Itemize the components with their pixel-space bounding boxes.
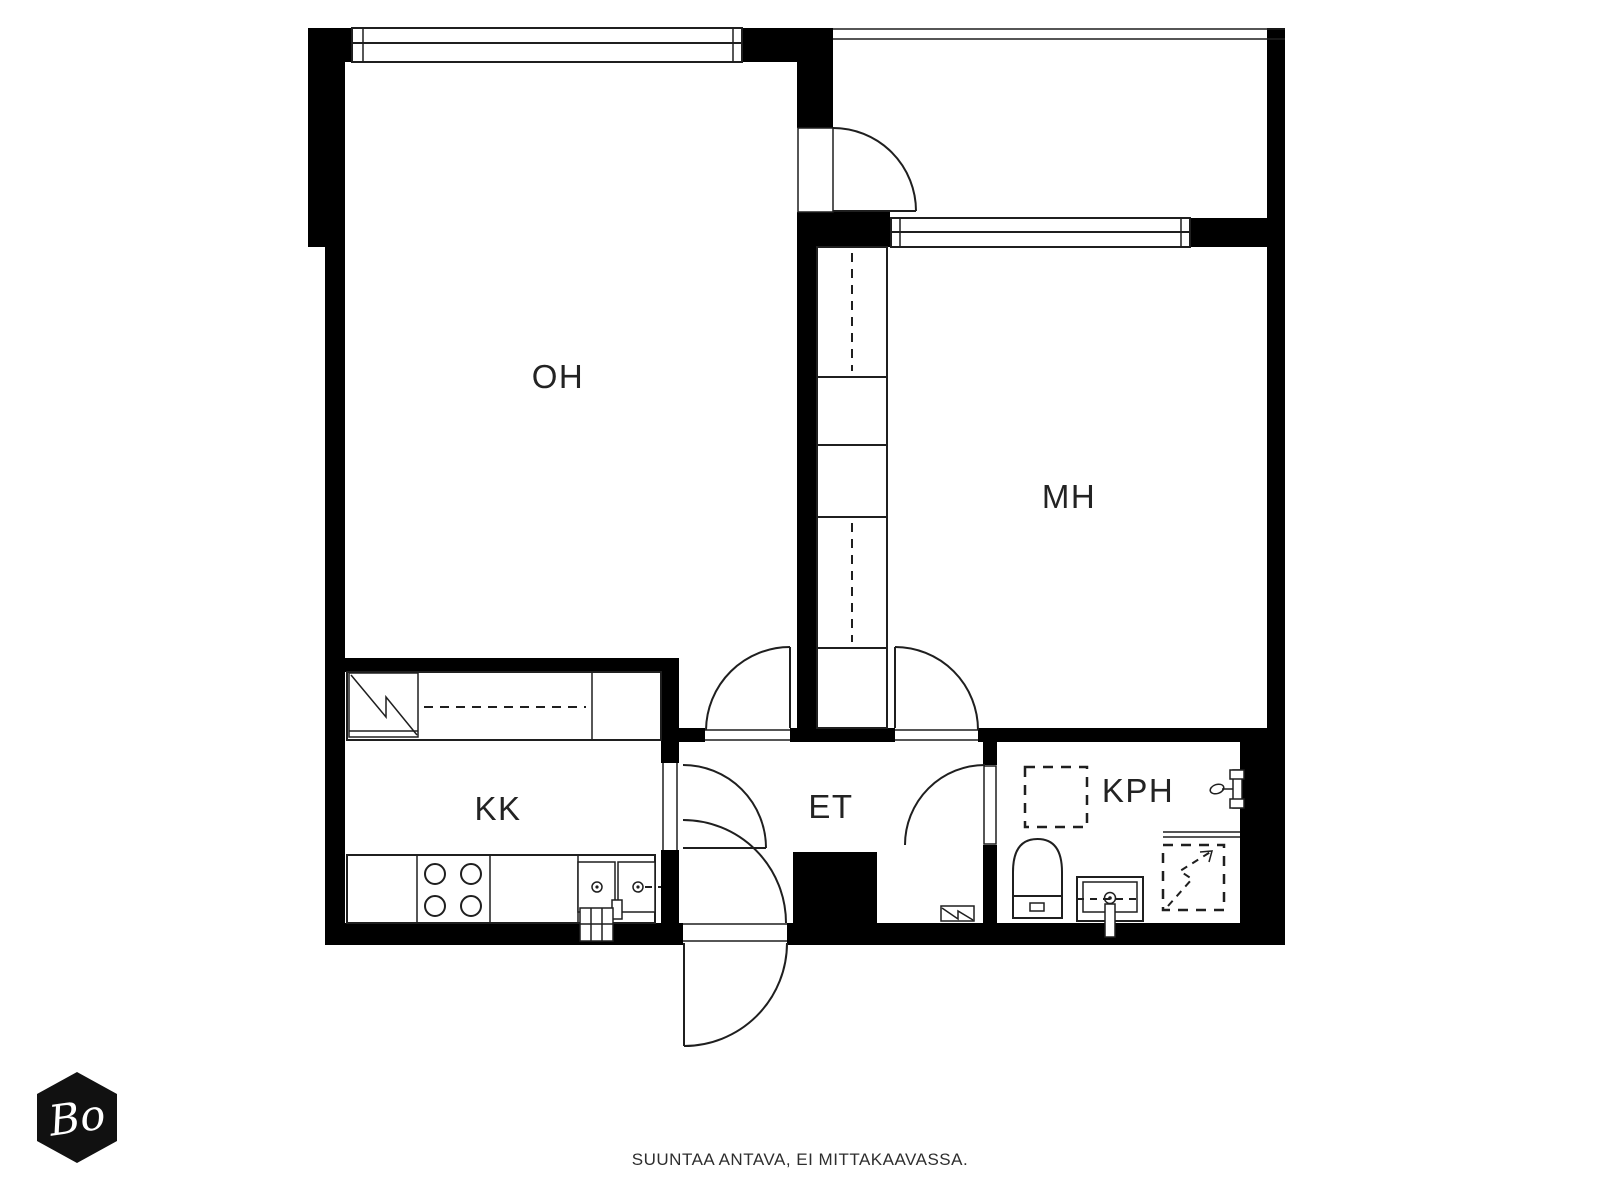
shower-rail-icon (1163, 832, 1240, 837)
wall-oh-kk (327, 658, 677, 672)
mh-window-icon (891, 218, 1190, 247)
wall-bottom (325, 923, 1285, 945)
room-label-kk: KK (474, 790, 521, 827)
wall-right-upper (1267, 28, 1285, 742)
room-label-oh: OH (532, 358, 585, 395)
room-label-mh: MH (1042, 478, 1096, 515)
shower-drain-arrow-icon (1163, 845, 1224, 910)
fridge-icon (349, 673, 418, 737)
oh-window-icon (352, 28, 742, 62)
wall-mh-top-right (1185, 218, 1269, 247)
et-structural-pillar (793, 852, 877, 923)
toilet-icon (1013, 839, 1062, 918)
wall-balcony-left-upper (797, 28, 833, 128)
kk-door-swing-icon (659, 763, 766, 850)
logo-text: Bo (45, 1089, 108, 1145)
wardrobe-column-icon (817, 247, 887, 728)
wall-et-top-mid (789, 728, 896, 742)
wall-wardrobe-spine (797, 247, 817, 742)
washing-machine-reservation-icon (1025, 767, 1087, 827)
room-label-et: ET (808, 788, 853, 825)
kph-door-swing-icon (905, 765, 999, 845)
entrance-door-swing-icon (683, 820, 787, 1046)
balcony-railing (833, 29, 1285, 39)
wall-kph-right (1240, 728, 1285, 945)
oh-door-swing-icon (705, 647, 790, 744)
wall-top-mid (740, 28, 800, 62)
shower-mixer-icon (1209, 770, 1244, 808)
brand-logo: Bo (37, 1072, 117, 1163)
wall-kk-et-lower (661, 850, 679, 925)
wall-kk-et-upper (661, 658, 679, 765)
footer-disclaimer: SUUNTAA ANTAVA, EI MITTAKAAVASSA. (632, 1150, 968, 1169)
floor-plan-drawing: OH MH KK ET KPH Bo SUUNTAA ANTAVA, EI MI… (0, 0, 1600, 1200)
balcony-door-swing-icon (798, 128, 916, 212)
floor-plan-page: OH MH KK ET KPH Bo SUUNTAA ANTAVA, EI MI… (0, 0, 1600, 1200)
wall-top-left-corner (308, 28, 354, 62)
radiator-icon (941, 906, 974, 921)
wall-et-top-left (661, 728, 707, 742)
mh-door-swing-icon (895, 647, 978, 744)
wall-vent-icon (580, 908, 613, 941)
wall-balcony-left-lower (797, 212, 890, 247)
wall-et-kph-upper (983, 742, 997, 767)
wall-mh-bottom (978, 728, 1285, 742)
room-label-kph: KPH (1102, 772, 1174, 809)
wall-left-lower (325, 247, 345, 945)
wall-et-kph-lower (983, 843, 997, 923)
